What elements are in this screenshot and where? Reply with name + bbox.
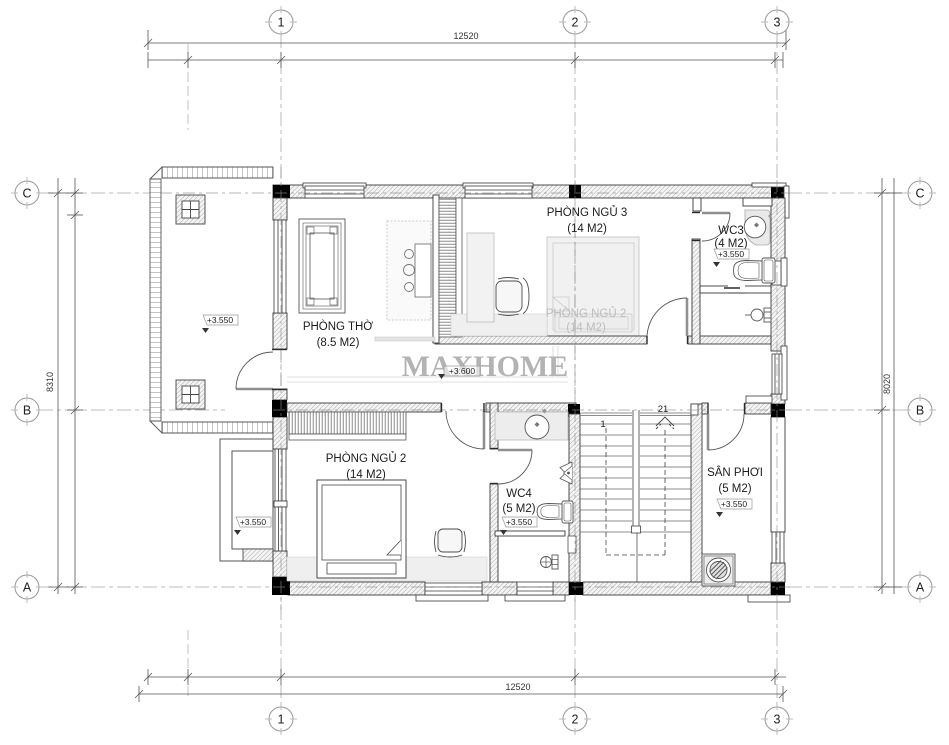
svg-text:1: 1 xyxy=(278,713,285,727)
svg-text:12520: 12520 xyxy=(453,31,478,41)
svg-text:12520: 12520 xyxy=(505,682,530,692)
svg-text:PHÒNG NGỦ 3: PHÒNG NGỦ 3 xyxy=(547,206,628,219)
svg-text:2: 2 xyxy=(572,16,579,30)
svg-text:3: 3 xyxy=(774,16,781,30)
svg-text:PHÒNG THỜ: PHÒNG THỜ xyxy=(303,320,373,333)
svg-text:WC4: WC4 xyxy=(506,488,532,500)
svg-text:PHÒNG NGỦ 2: PHÒNG NGỦ 2 xyxy=(326,452,407,465)
svg-text:(5 M2): (5 M2) xyxy=(718,483,751,495)
svg-text:3: 3 xyxy=(774,713,781,727)
svg-text:(14 M2): (14 M2) xyxy=(566,322,606,334)
svg-text:+3.550: +3.550 xyxy=(721,499,748,509)
svg-text:B: B xyxy=(23,404,31,418)
svg-text:(5 M2): (5 M2) xyxy=(502,503,535,515)
svg-text:(14 M2): (14 M2) xyxy=(346,469,386,481)
svg-text:2: 2 xyxy=(572,713,579,727)
svg-text:(14 M2): (14 M2) xyxy=(567,223,607,235)
svg-text:(8.5 M2): (8.5 M2) xyxy=(317,337,360,349)
svg-text:MAXHOME: MAXHOME xyxy=(402,350,569,383)
svg-text:+3.550: +3.550 xyxy=(718,249,745,259)
svg-text:C: C xyxy=(915,187,924,201)
svg-text:+3.600: +3.600 xyxy=(449,366,476,376)
svg-text:A: A xyxy=(23,581,32,595)
svg-text:A: A xyxy=(916,581,925,595)
svg-text:8310: 8310 xyxy=(45,372,55,392)
svg-text:+3.550: +3.550 xyxy=(506,517,533,527)
svg-text:WC3: WC3 xyxy=(718,225,744,237)
svg-text:1: 1 xyxy=(600,419,605,430)
svg-text:B: B xyxy=(916,404,924,418)
svg-text:8020: 8020 xyxy=(882,374,892,394)
svg-text:SÂN PHƠI: SÂN PHƠI xyxy=(707,466,763,479)
svg-text:1: 1 xyxy=(278,16,285,30)
svg-text:+3.550: +3.550 xyxy=(207,315,234,325)
svg-text:C: C xyxy=(22,187,31,201)
svg-text:PHÒNG NGỦ 2: PHÒNG NGỦ 2 xyxy=(546,307,627,320)
svg-text:21: 21 xyxy=(658,404,669,415)
svg-text:+3.550: +3.550 xyxy=(240,517,267,527)
